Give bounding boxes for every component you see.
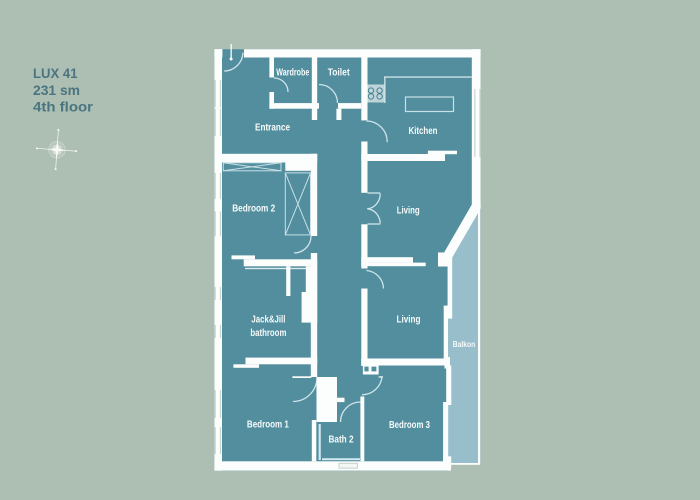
svg-text:4th floor: 4th floor (33, 99, 94, 115)
svg-text:LUX 41: LUX 41 (33, 65, 78, 81)
svg-text:Balkon: Balkon (453, 340, 476, 349)
svg-text:Bath 2: Bath 2 (329, 433, 354, 445)
svg-text:Living: Living (397, 205, 420, 217)
svg-text:Entrance: Entrance (255, 122, 290, 134)
svg-text:231 sm: 231 sm (33, 82, 80, 98)
svg-text:bathroom: bathroom (250, 327, 286, 339)
svg-text:Wardrobe: Wardrobe (276, 67, 309, 79)
svg-text:Jack&Jill: Jack&Jill (251, 314, 285, 326)
svg-text:Bedroom 3: Bedroom 3 (389, 419, 430, 431)
svg-text:Toilet: Toilet (328, 67, 350, 79)
svg-text:Living: Living (397, 313, 421, 325)
svg-text:Kitchen: Kitchen (409, 125, 438, 137)
svg-text:Bedroom 1: Bedroom 1 (247, 419, 289, 431)
svg-text:Bedroom 2: Bedroom 2 (232, 202, 275, 214)
